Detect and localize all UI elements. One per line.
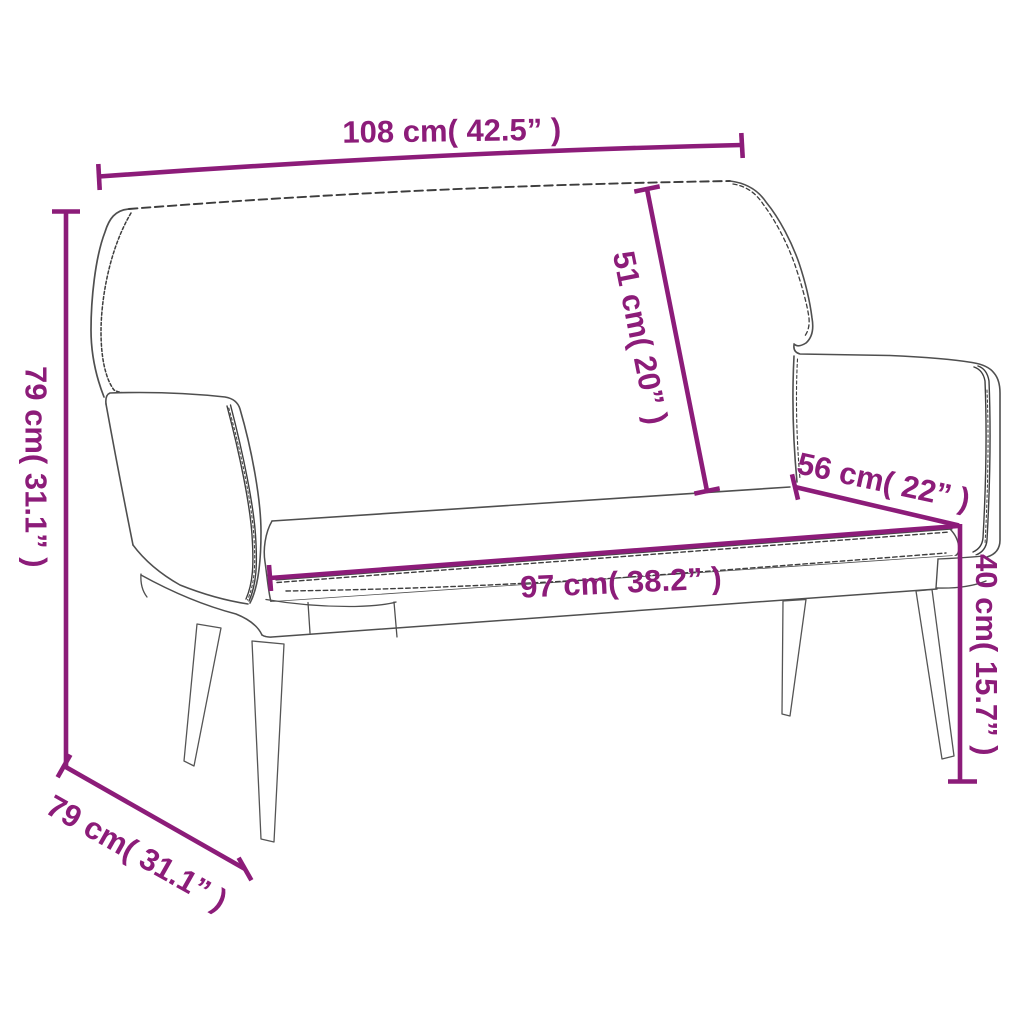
svg-text:79 cm( 31.1” ): 79 cm( 31.1” ) — [19, 366, 54, 568]
svg-text:108 cm( 42.5” ): 108 cm( 42.5” ) — [342, 112, 561, 150]
svg-text:40 cm( 15.7” ): 40 cm( 15.7” ) — [969, 554, 1004, 756]
